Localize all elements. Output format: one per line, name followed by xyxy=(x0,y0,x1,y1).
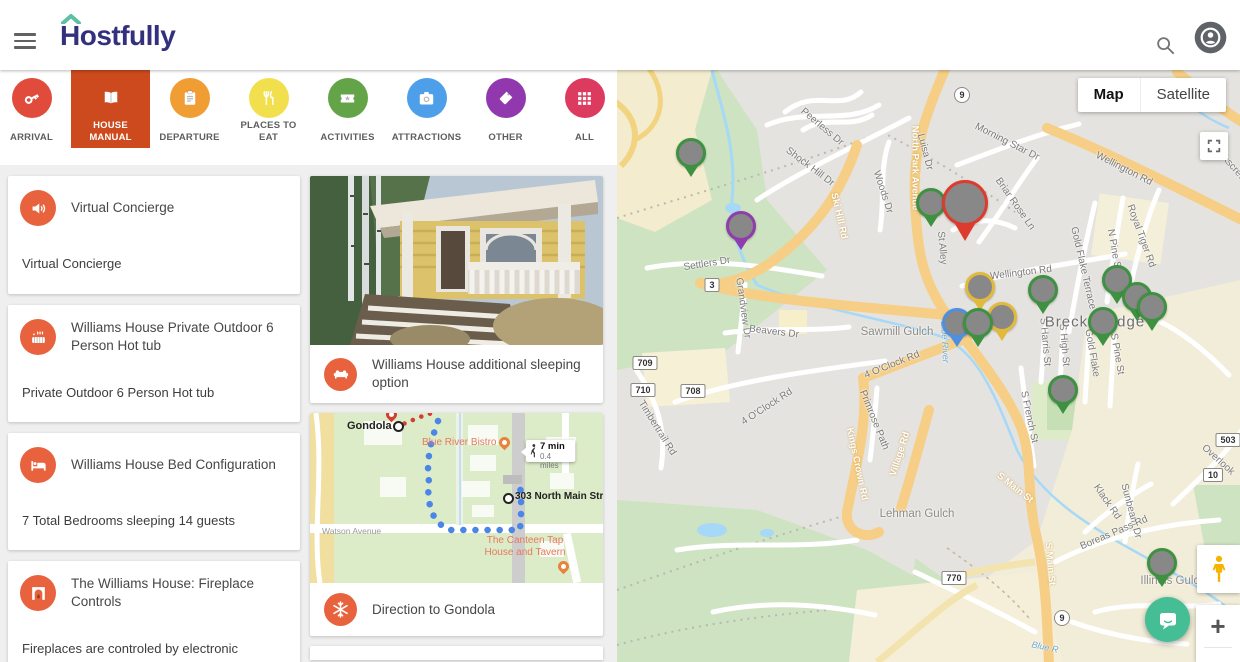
route-shield: 710 xyxy=(630,383,655,397)
account-avatar-icon[interactable] xyxy=(1194,21,1227,54)
guidebook-pane: ARRIVAL HOUSE MANUAL DEPARTURE PLACES TO… xyxy=(0,70,617,662)
chat-button[interactable] xyxy=(1145,597,1190,642)
card-hot-tub[interactable]: Williams House Private Outdoor 6 Person … xyxy=(8,305,300,422)
category-activities[interactable]: ACTIVITIES xyxy=(308,70,387,148)
card-description: Virtual Concierge xyxy=(22,256,284,273)
route-shield: 10 xyxy=(1203,468,1223,482)
map-marker-house-purple[interactable] xyxy=(726,211,756,250)
cards-area: Virtual Concierge Virtual Concierge Will… xyxy=(0,165,617,662)
menu-icon[interactable] xyxy=(14,33,36,49)
card-additional-sleeping[interactable]: Williams House additional sleeping optio… xyxy=(310,176,603,403)
pegman-icon xyxy=(1208,554,1230,584)
plus-icon: + xyxy=(1196,605,1240,647)
hot-tub-icon xyxy=(20,319,56,355)
marker-tail xyxy=(995,330,1009,341)
zoom-in-button[interactable]: + xyxy=(1196,605,1240,662)
marker-tail xyxy=(734,239,748,250)
map-marker-shop[interactable] xyxy=(1147,548,1177,587)
card-fireplace-controls[interactable]: The Williams House: Fireplace Controls F… xyxy=(8,561,300,662)
route-shield: 770 xyxy=(941,571,966,585)
next-card-partial[interactable] xyxy=(310,646,603,660)
category-other[interactable]: OTHER xyxy=(466,70,545,148)
hostfully-logo[interactable]: Hostfully xyxy=(60,16,175,56)
category-house-manual[interactable]: HOUSE MANUAL xyxy=(71,70,150,148)
category-bar: ARRIVAL HOUSE MANUAL DEPARTURE PLACES TO… xyxy=(0,70,617,165)
map-marker-street2[interactable] xyxy=(1137,292,1167,331)
card-title: Williams House additional sleeping optio… xyxy=(372,356,589,392)
bed-icon xyxy=(20,447,56,483)
card-title: Williams House Bed Configuration xyxy=(71,456,276,474)
book-icon xyxy=(91,78,131,118)
gmap-canteen-label: The Canteen Tap House and Tavern xyxy=(482,535,568,558)
route-shield: 9 xyxy=(954,87,970,103)
map[interactable]: Peerless DrShock Hill DrWoods DrSki Hill… xyxy=(617,70,1240,662)
card-description: Fireplaces are controled by electronic xyxy=(22,641,284,658)
speaker-icon xyxy=(20,190,56,226)
utensils-icon xyxy=(249,78,289,118)
key-icon xyxy=(12,78,52,118)
marker-photo xyxy=(1147,548,1177,578)
marker-tail xyxy=(1155,576,1169,587)
map-marker-lake[interactable] xyxy=(676,138,706,177)
fireplace-icon xyxy=(20,575,56,611)
map-marker-red-house[interactable] xyxy=(942,180,988,241)
category-arrival[interactable]: ARRIVAL xyxy=(0,70,71,148)
marker-photo xyxy=(965,272,995,302)
marker-photo xyxy=(1137,292,1167,322)
map-type-control: Map Satellite xyxy=(1078,78,1226,112)
marker-tail xyxy=(950,336,964,347)
fullscreen-button[interactable] xyxy=(1200,132,1228,160)
card-title: Williams House Private Outdoor 6 Person … xyxy=(71,319,284,355)
card-bed-configuration[interactable]: Williams House Bed Configuration 7 Total… xyxy=(8,433,300,550)
tag-icon xyxy=(486,78,526,118)
logo-text: Hostfully xyxy=(60,20,175,51)
card-description: Private Outdoor 6 Person Hot tub xyxy=(22,385,284,402)
walking-directions-map: Gondola Blue River Bistro 7 min 0.4 mile… xyxy=(310,413,603,583)
header: Hostfully xyxy=(0,0,1240,70)
category-all[interactable]: ALL xyxy=(545,70,617,148)
gmap-destination-label: Gondola xyxy=(347,420,392,432)
camera-icon xyxy=(407,78,447,118)
sofa-icon xyxy=(324,358,357,391)
chat-bubble-icon xyxy=(1156,608,1180,632)
marker-tail xyxy=(1145,320,1159,331)
route-shield: 708 xyxy=(680,384,705,398)
logo-roof-icon xyxy=(61,14,83,24)
grid-icon xyxy=(565,78,605,118)
marker-tail xyxy=(1036,303,1050,314)
search-icon[interactable] xyxy=(1154,34,1176,56)
gmap-walk-time-box: 7 min 0.4 miles xyxy=(526,440,575,462)
map-marker-white-house[interactable] xyxy=(963,308,993,347)
gmap-origin-label: 303 North Main Street xyxy=(515,491,603,502)
map-view-button[interactable]: Map xyxy=(1078,78,1140,112)
marker-tail xyxy=(684,166,698,177)
category-places-to-eat[interactable]: PLACES TO EAT xyxy=(229,70,308,148)
snowflake-icon xyxy=(324,593,357,626)
marker-photo xyxy=(726,211,756,241)
gmap-street-label: Watson Avenue xyxy=(322,526,381,536)
ticket-icon xyxy=(328,78,368,118)
marker-photo xyxy=(942,180,988,226)
route-shield: 9 xyxy=(1054,610,1070,626)
map-marker-garden[interactable] xyxy=(1028,275,1058,314)
marker-tail xyxy=(971,336,985,347)
marker-photo xyxy=(676,138,706,168)
route-shield: 503 xyxy=(1215,433,1240,447)
satellite-view-button[interactable]: Satellite xyxy=(1140,78,1226,112)
house-photo xyxy=(310,176,603,345)
card-title: Virtual Concierge xyxy=(71,199,174,217)
marker-photo xyxy=(1028,275,1058,305)
clipboard-icon xyxy=(170,78,210,118)
marker-tail xyxy=(955,224,975,241)
marker-tail xyxy=(1096,335,1110,346)
marker-tail xyxy=(924,216,938,227)
marker-tail xyxy=(1056,403,1070,414)
card-description: 7 Total Bedrooms sleeping 14 guests xyxy=(22,513,284,530)
walking-person-icon xyxy=(529,444,538,458)
marker-photo xyxy=(1088,307,1118,337)
card-direction-gondola[interactable]: Gondola Blue River Bistro 7 min 0.4 mile… xyxy=(310,413,603,636)
marker-photo xyxy=(963,308,993,338)
marker-photo xyxy=(1048,375,1078,405)
category-departure[interactable]: DEPARTURE xyxy=(150,70,229,148)
route-shield: 709 xyxy=(632,356,657,370)
card-title: The Williams House: Fireplace Controls xyxy=(71,575,284,611)
map-marker-meadow[interactable] xyxy=(1048,375,1078,414)
card-virtual-concierge[interactable]: Virtual Concierge Virtual Concierge xyxy=(8,176,300,294)
route-shield: 3 xyxy=(704,278,719,292)
category-attractions[interactable]: ATTRACTIONS xyxy=(387,70,466,148)
pegman-control[interactable] xyxy=(1197,545,1240,593)
card-title: Direction to Gondola xyxy=(372,601,495,619)
map-marker-skier[interactable] xyxy=(1088,307,1118,346)
gmap-bistro-label: Blue River Bistro xyxy=(422,437,496,449)
